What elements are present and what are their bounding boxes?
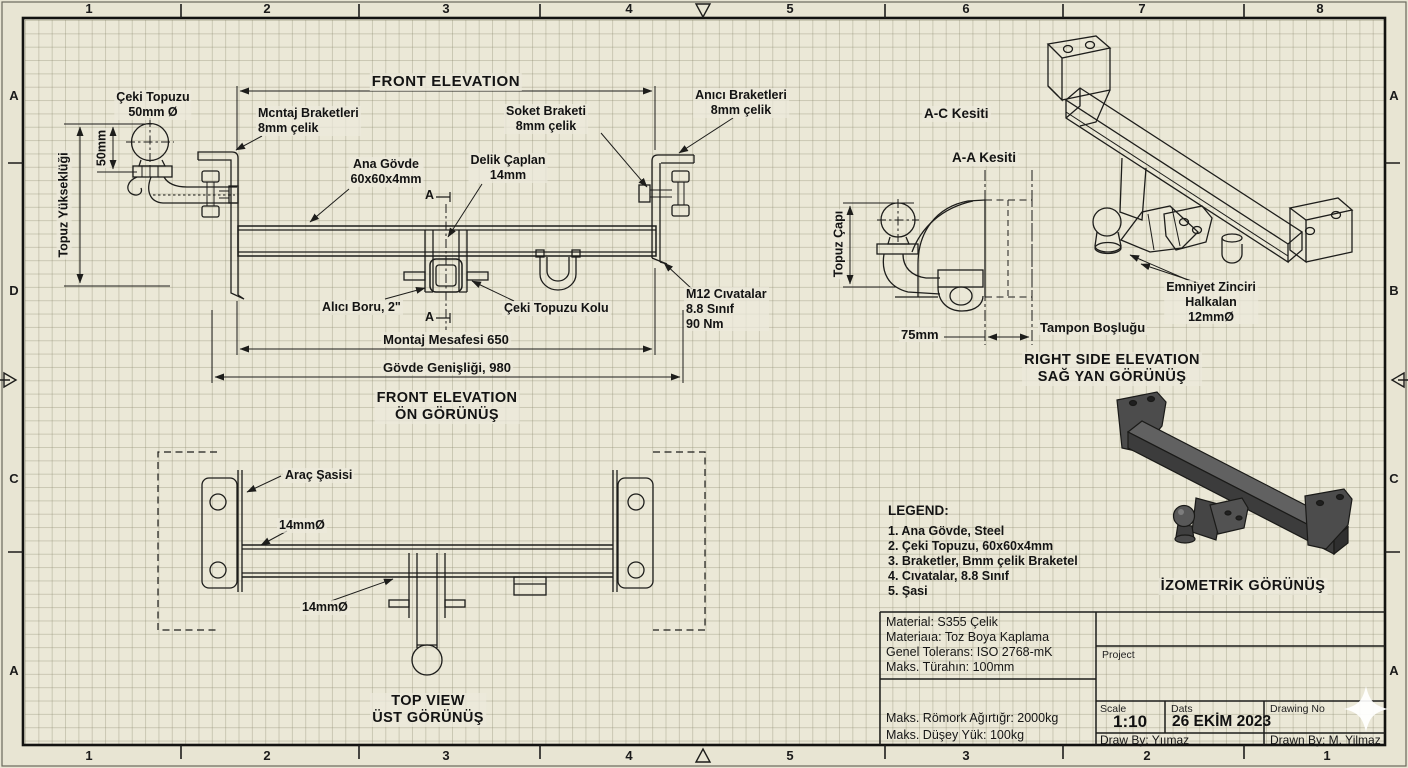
dim-body-width: Gövde Genişliği, 980 <box>381 360 513 375</box>
draw-by-value: Draw By: Yıımaz <box>1100 733 1189 747</box>
scale-value: 1:10 <box>1113 712 1147 732</box>
mount-bracket-label: Mcntaj Braketleri 8mm çelik <box>256 106 361 136</box>
ball-arm-label: Çeki Topuzu Kolu <box>502 301 611 316</box>
zone-letter: A <box>1389 663 1398 678</box>
legend-item: 3. Braketler, Bmm çelik Braketel <box>888 554 1078 568</box>
zone-number: 8 <box>1316 1 1323 16</box>
zone-letter: A <box>1389 88 1398 103</box>
zone-letter: C <box>9 471 18 486</box>
zone-letter: B <box>1389 283 1398 298</box>
top-view-drawing <box>158 452 705 675</box>
zone-letter: C <box>1389 471 1398 486</box>
dim-75mm: 75mm <box>899 327 941 342</box>
zone-number: 3 <box>442 1 449 16</box>
zone-number: 2 <box>263 1 270 16</box>
zone-number: 6 <box>962 1 969 16</box>
front-elevation-title: FRONT ELEVATION <box>370 73 522 91</box>
max-trailer-weight: Maks. Römork Ağırtığr: 2000kg <box>886 711 1058 725</box>
hole-14mm-label-2: 14mmØ <box>300 600 350 615</box>
drawing-sheet: 1 2 3 4 5 6 7 8 1 2 3 4 5 3 2 1 A D C A … <box>0 0 1408 768</box>
chassis-label: Araç Şasisi <box>283 468 354 483</box>
tow-ball-label: Çeki Topuzu 50mm Ø <box>114 90 191 120</box>
bolt-spec-label: M12 Cıvatalar 8.8 Sınıf 90 Nm <box>684 287 769 331</box>
section-aa-label: A-A Kesiti <box>950 150 1018 166</box>
zone-number: 7 <box>1138 1 1145 16</box>
legend-item: 5. Şasi <box>888 584 928 598</box>
legend-item: 1. Ana Gövde, Steel <box>888 524 1004 538</box>
bumper-clearance-label: Tampon Boşluğu <box>1038 320 1147 335</box>
date-value: 26 EKİM 2023 <box>1172 713 1271 731</box>
isometric-wireframe-drawing <box>1048 36 1352 283</box>
zone-number: 1 <box>85 1 92 16</box>
main-body-label: Ana Gövde 60x60x4mm <box>349 157 424 187</box>
section-ac-label: A-C Kesiti <box>922 106 991 122</box>
dim-ball-height: Topuz Yükseklüği <box>57 150 72 259</box>
max-vertical-load: Maks. Düşey Yük: 100kg <box>886 728 1024 742</box>
section-view-drawing <box>843 170 1032 345</box>
zone-number: 3 <box>442 748 449 763</box>
socket-bracket-label: Soket Braketi 8mm çelik <box>504 104 588 134</box>
zone-number: 1 <box>1323 748 1330 763</box>
zone-number: 4 <box>625 1 632 16</box>
main-bracket-label: Anıcı Braketleri 8mm çelik <box>693 88 789 118</box>
front-elevation-caption: FRONT ELEVATION ÖN GÖRÜNÜŞ <box>375 390 520 424</box>
zone-number: 5 <box>786 748 793 763</box>
coating-value: Materiaıa: Toz Boya Kaplama <box>886 630 1049 644</box>
right-side-caption: RIGHT SIDE ELEVATION SAĞ YAN GÖRÜNÜŞ <box>1022 352 1202 386</box>
drawing-no-label: Drawing No <box>1270 703 1325 715</box>
zone-letter: A <box>9 663 18 678</box>
legend-item: 2. Çeki Topuzu, 60x60x4mm <box>888 539 1053 553</box>
zone-letter: A <box>9 88 18 103</box>
drawn-by-value: Drawn By: M. Yilmaz <box>1270 733 1381 747</box>
dim-mount-distance: Montaj Mesafesi 650 <box>381 332 511 347</box>
hole-diameter-label: Delik Çaplan 14mm <box>468 153 547 183</box>
dim-ball-diameter: Topuz Çapı <box>832 209 847 279</box>
zone-number: 5 <box>786 1 793 16</box>
safety-chain-label: Emniyet Zinciri Halkalan 12mmØ <box>1164 280 1258 324</box>
section-marker-a-top: A <box>423 188 436 203</box>
isometric-caption: İZOMETRİK GÖRÜNÜŞ <box>1159 578 1328 595</box>
receiver-tube-label: Alıcı Boru, 2" <box>320 300 403 315</box>
dim-50mm: 50mm <box>95 128 110 168</box>
project-label: Project <box>1102 649 1135 661</box>
zone-number: 1 <box>85 748 92 763</box>
zone-number: 2 <box>263 748 270 763</box>
watermark-sparkle <box>1344 686 1388 732</box>
material-value: Material: S355 Çelik <box>886 615 998 629</box>
section-marker-a-bottom: A <box>423 310 436 325</box>
zone-letter: D <box>9 283 18 298</box>
isometric-shaded-drawing <box>1117 392 1352 554</box>
tolerance-value: Genel Tolerans: ISO 2768-mK <box>886 645 1053 659</box>
legend-title: LEGEND: <box>888 503 949 518</box>
hole-14mm-label-1: 14mmØ <box>277 518 327 533</box>
zone-number: 4 <box>625 748 632 763</box>
zone-number: 2 <box>1143 748 1150 763</box>
legend-item: 4. Cıvatalar, 8.8 Sınıf <box>888 569 1009 583</box>
max-overhang-value: Maks. Türahın: 100mm <box>886 660 1014 674</box>
top-view-caption: TOP VIEW ÜST GÖRÜNÜŞ <box>370 693 486 727</box>
zone-number: 3 <box>962 748 969 763</box>
